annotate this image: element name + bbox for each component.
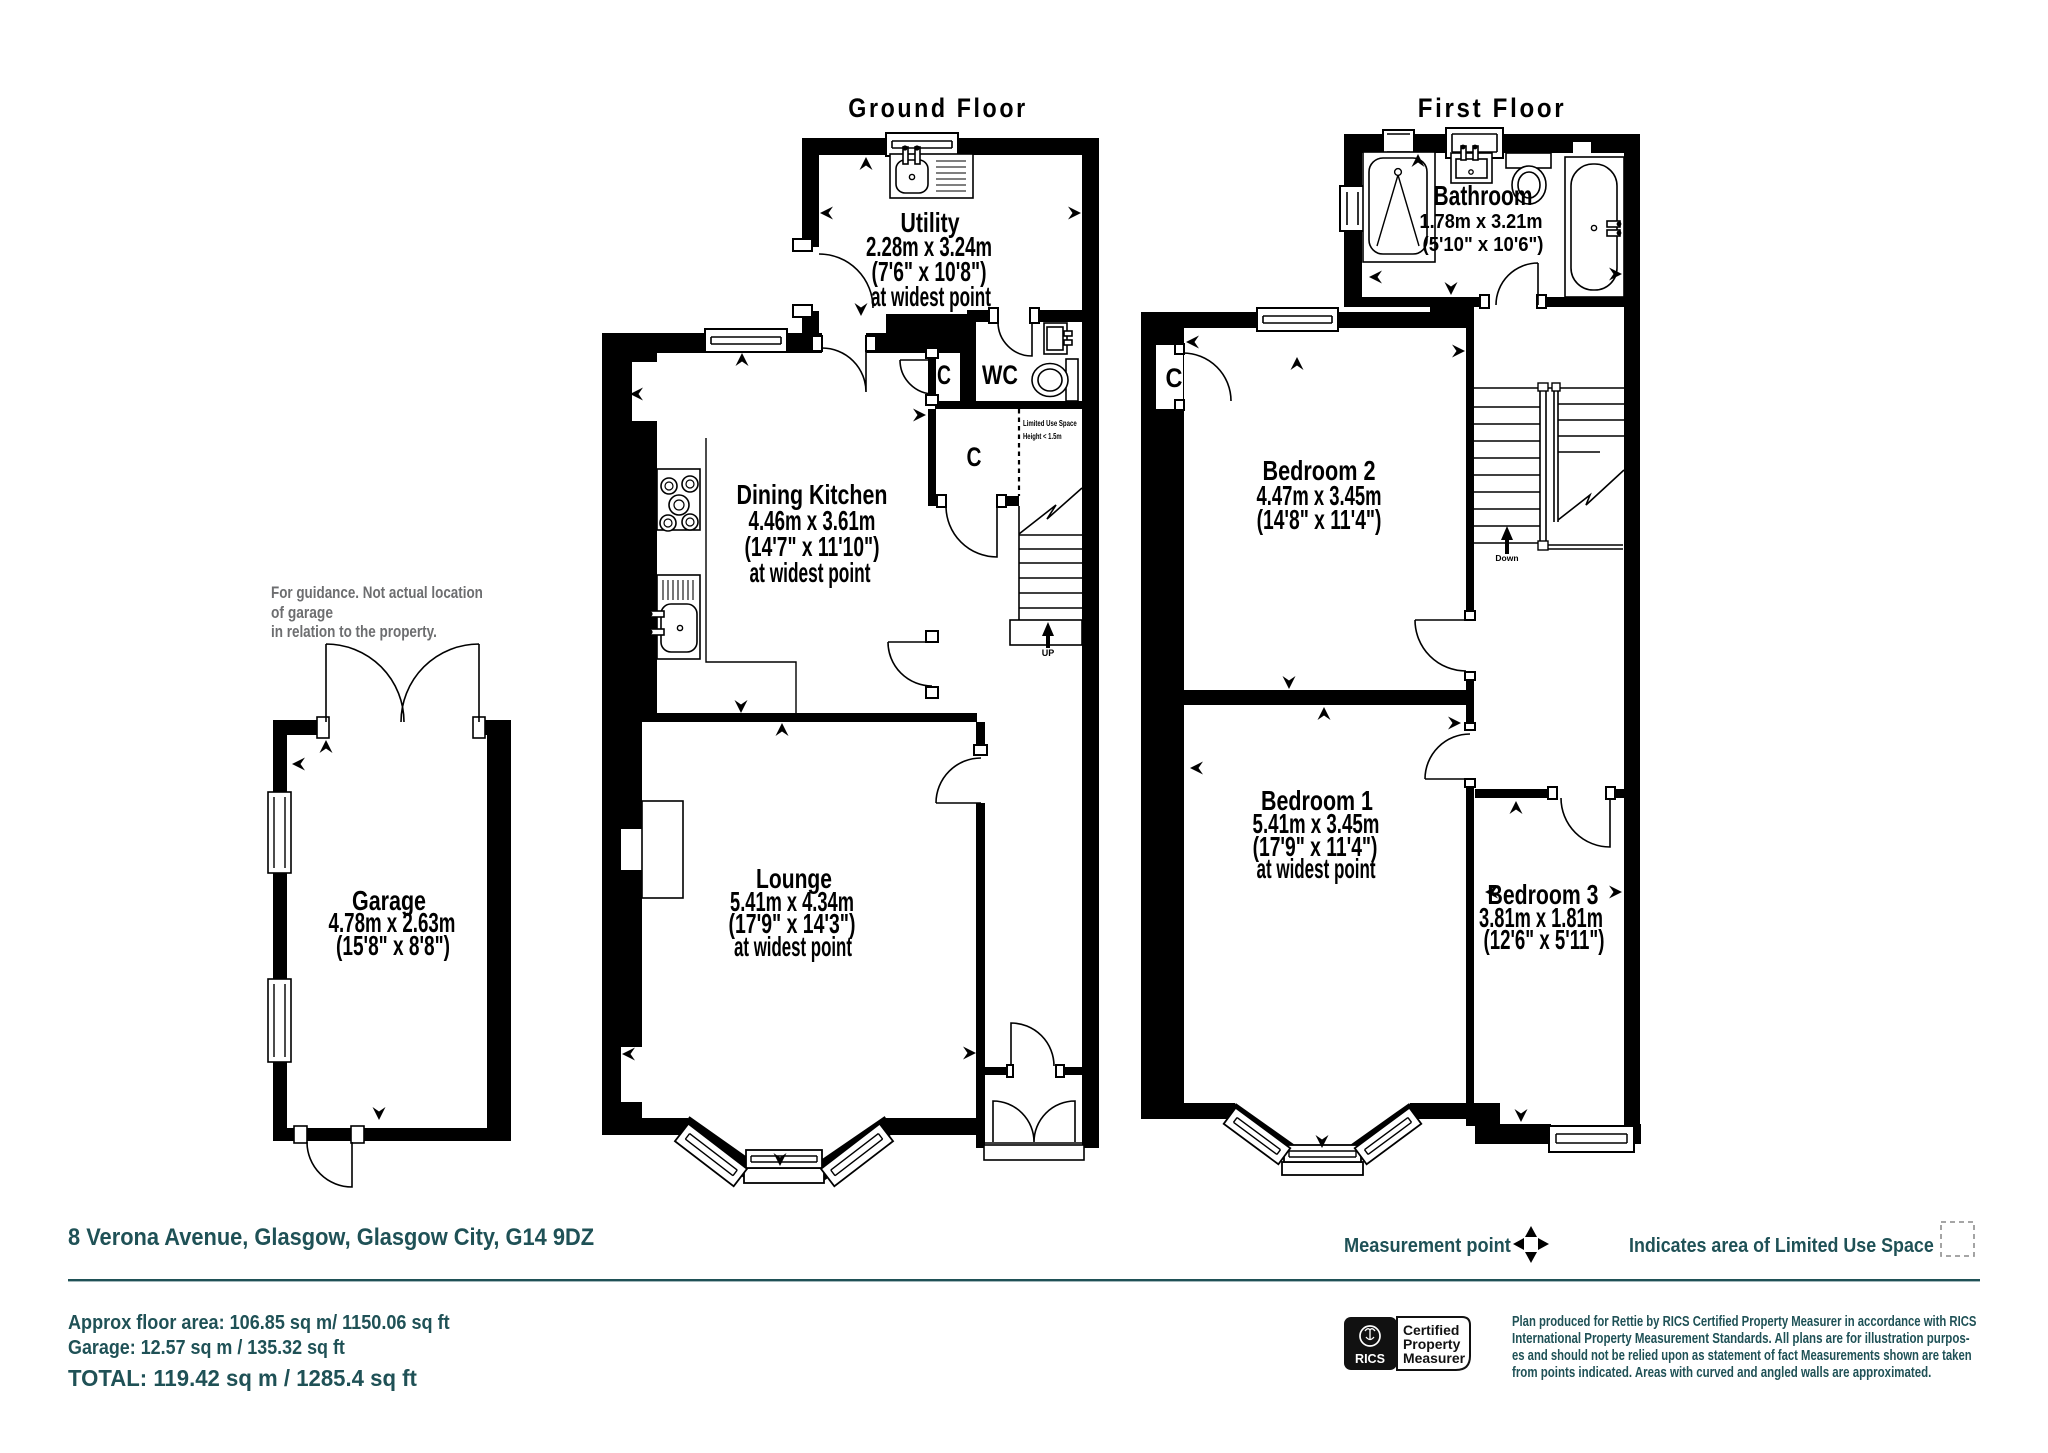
svg-text:Indicates area of Limited Use: Indicates area of Limited Use Space [1629, 1235, 1934, 1257]
svg-text:Measurer: Measurer [1403, 1350, 1466, 1366]
svg-text:WC: WC [982, 361, 1018, 391]
svg-text:Measurement point: Measurement point [1344, 1235, 1511, 1257]
svg-text:Bathroom: Bathroom [1434, 181, 1533, 212]
svg-text:C: C [1166, 364, 1183, 394]
svg-text:(15'8" x 8'8"): (15'8" x 8'8") [336, 930, 450, 962]
svg-text:Limited Use Space: Limited Use Space [1023, 418, 1077, 428]
svg-text:of garage: of garage [271, 604, 333, 623]
svg-text:es and should not be relied up: es and should not be relied upon as stat… [1512, 1346, 1972, 1363]
svg-text:C: C [937, 360, 951, 390]
svg-text:8 Verona Avenue, Glasgow, Glas: 8 Verona Avenue, Glasgow, Glasgow City, … [68, 1223, 594, 1250]
svg-text:from points indicated. Areas w: from points indicated. Areas with curved… [1512, 1364, 1931, 1381]
svg-text:(5'10" x 10'6"): (5'10" x 10'6") [1423, 234, 1544, 256]
svg-text:C: C [967, 442, 982, 472]
svg-text:in relation to the property.: in relation to the property. [271, 623, 437, 642]
svg-text:at widest point: at widest point [750, 557, 871, 588]
svg-text:Garage: 12.57 sq m / 135.32 sq: Garage: 12.57 sq m / 135.32 sq ft [68, 1337, 346, 1359]
svg-text:For guidance. Not actual locat: For guidance. Not actual location [271, 584, 483, 603]
svg-text:TOTAL: 119.42 sq m / 1285.4 sq: TOTAL: 119.42 sq m / 1285.4 sq ft [68, 1366, 417, 1391]
svg-text:RICS: RICS [1355, 1352, 1385, 1366]
svg-text:Down: Down [1495, 553, 1518, 563]
svg-text:First Floor: First Floor [1418, 94, 1567, 124]
svg-text:at widest point: at widest point [871, 281, 991, 312]
svg-text:(14'8" x 11'4"): (14'8" x 11'4") [1257, 505, 1382, 536]
svg-text:International Property Measur: International Property Measurement Stand… [1512, 1330, 1970, 1347]
svg-text:UP: UP [1042, 648, 1055, 658]
svg-text:at widest point: at widest point [734, 931, 852, 963]
svg-text:Height < 1.5m: Height < 1.5m [1023, 431, 1062, 441]
svg-text:at widest point: at widest point [1257, 853, 1376, 884]
svg-text:Ground Floor: Ground Floor [848, 93, 1027, 123]
svg-text:Approx floor area: 106.85 sq m: Approx floor area: 106.85 sq m/ 1150.06 … [68, 1312, 450, 1334]
svg-text:Plan produced for Rettie by RI: Plan produced for Rettie by RICS Certifi… [1512, 1312, 1977, 1329]
svg-text:(12'6" x 5'11"): (12'6" x 5'11") [1484, 924, 1605, 956]
svg-text:1.78m x 3.21m: 1.78m x 3.21m [1420, 211, 1543, 233]
